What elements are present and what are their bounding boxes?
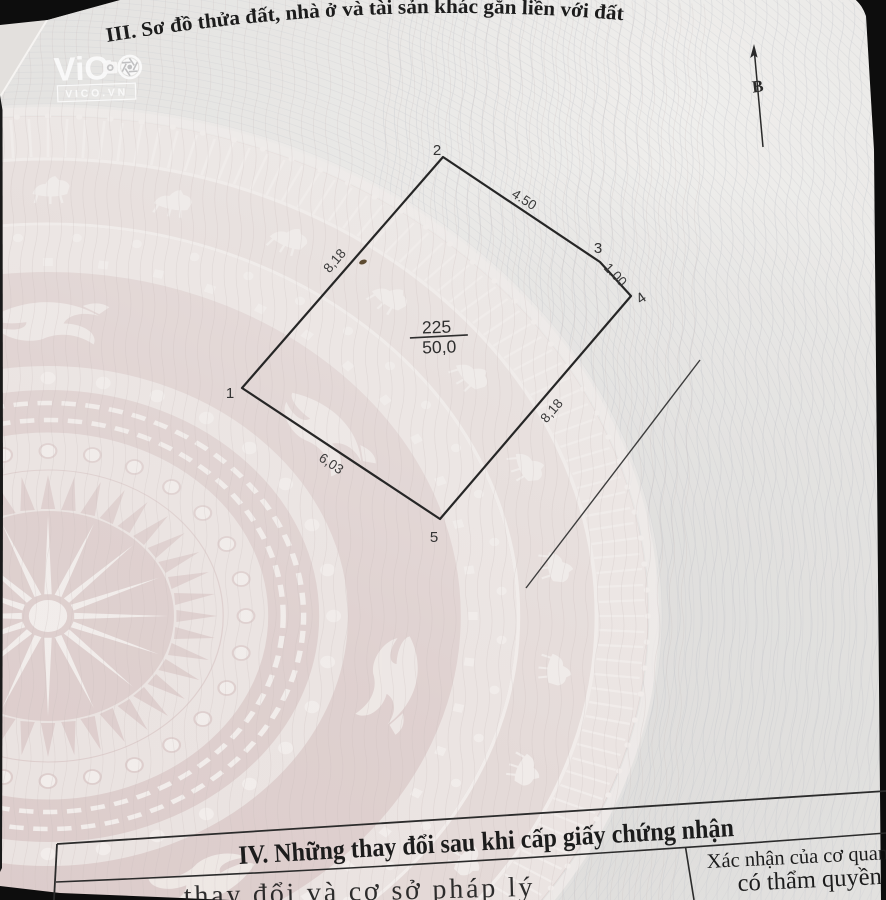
svg-text:2: 2 — [433, 142, 441, 159]
svg-text:225: 225 — [422, 317, 452, 338]
svg-text:B: B — [751, 76, 765, 96]
svg-text:3: 3 — [594, 240, 602, 257]
svg-text:ViC: ViC — [53, 49, 109, 88]
svg-text:50,0: 50,0 — [422, 336, 457, 357]
svg-text:VICO.VN: VICO.VN — [65, 86, 128, 100]
svg-text:1: 1 — [226, 385, 234, 402]
svg-text:5: 5 — [430, 529, 438, 546]
